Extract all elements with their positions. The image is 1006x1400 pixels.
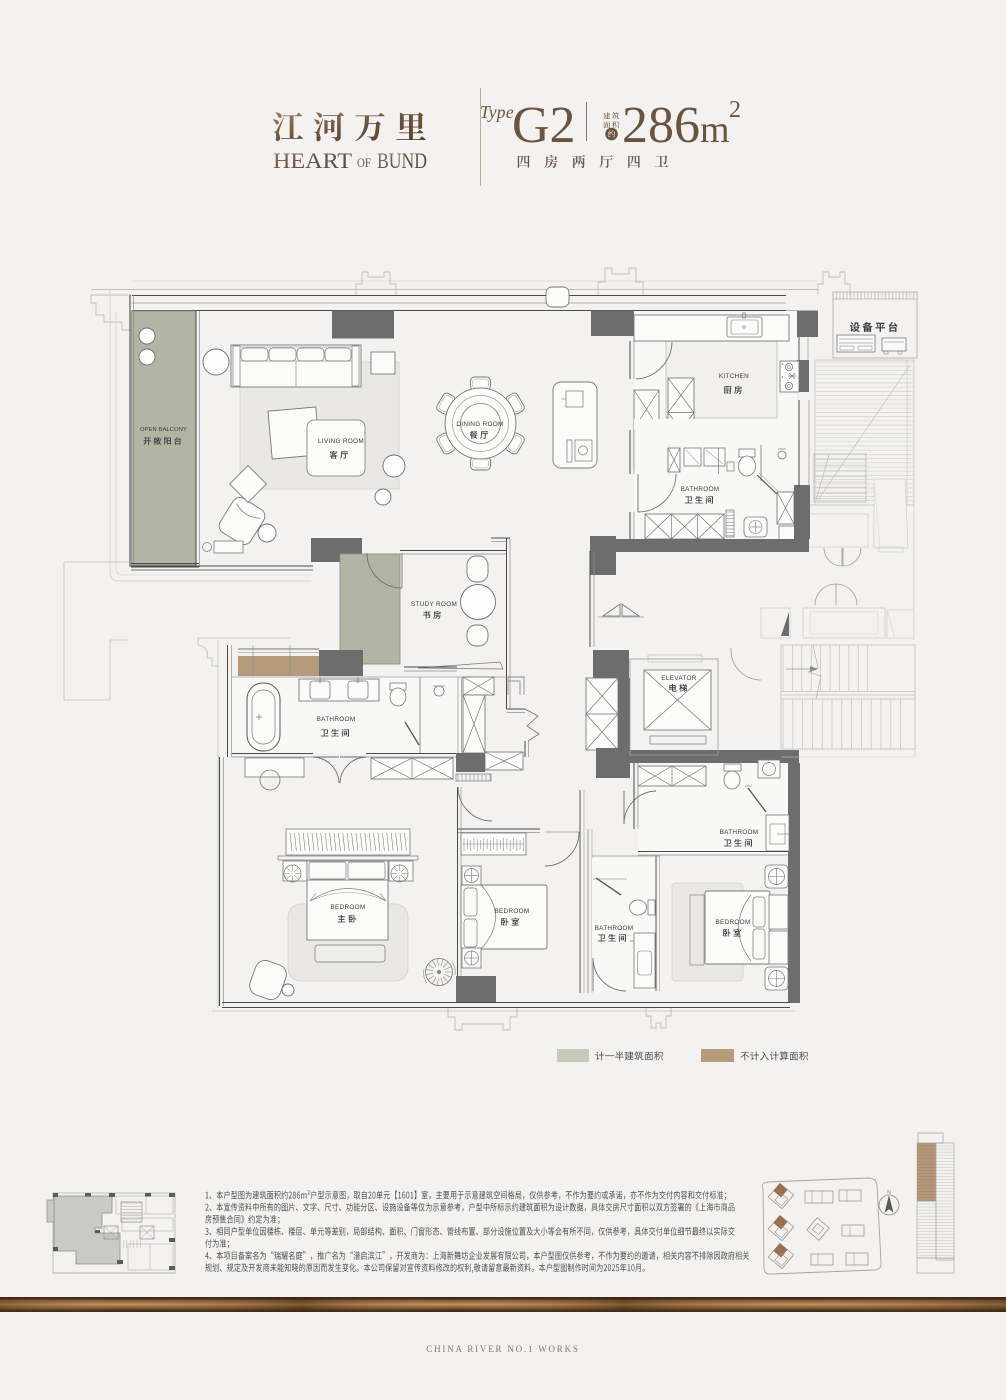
svg-text:m: m [700,109,730,151]
svg-text:BUND: BUND [377,148,427,173]
svg-text:STUDY ROOM: STUDY ROOM [411,601,457,608]
svg-text:BEDROOM: BEDROOM [715,919,750,926]
svg-text:LIVING ROOM: LIVING ROOM [318,438,364,445]
svg-text:CHINA RIVER NO.1 WORKS: CHINA RIVER NO.1 WORKS [426,1344,579,1354]
svg-text:BEDROOM: BEDROOM [330,904,365,911]
svg-text:BATHROOM: BATHROOM [681,486,720,493]
svg-text:BATHROOM: BATHROOM [317,716,356,723]
svg-text:BEDROOM: BEDROOM [494,908,529,915]
svg-text:DINING ROOM: DINING ROOM [456,421,503,428]
svg-text:Type: Type [480,102,514,122]
svg-text:OPEN BALCONY: OPEN BALCONY [140,427,187,433]
svg-text:286: 286 [622,97,700,154]
svg-text:HEART: HEART [273,148,353,173]
svg-text:KITCHEN: KITCHEN [719,373,749,380]
svg-text:BATHROOM: BATHROOM [595,925,634,932]
svg-text:N: N [887,1190,891,1196]
svg-text:BATHROOM: BATHROOM [720,829,759,836]
svg-text:ELEVATOR: ELEVATOR [661,675,697,682]
svg-text:2: 2 [729,97,741,123]
svg-text:G2: G2 [512,97,576,154]
svg-text:OF: OF [357,155,371,170]
